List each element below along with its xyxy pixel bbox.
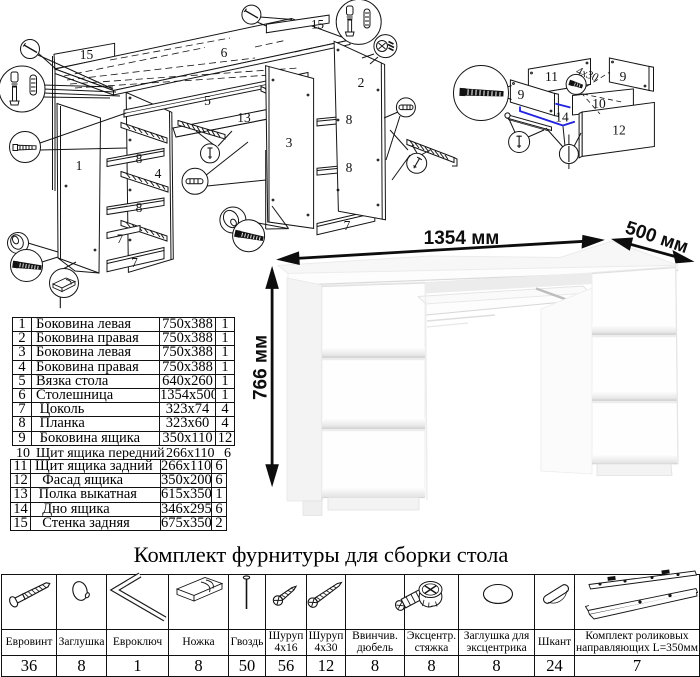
svg-text:2: 2 — [358, 75, 365, 90]
svg-text:8: 8 — [346, 112, 353, 127]
svg-text:4: 4 — [155, 166, 162, 181]
svg-text:3: 3 — [286, 135, 293, 150]
svg-text:9: 9 — [518, 87, 525, 102]
svg-text:10: 10 — [592, 96, 606, 111]
svg-text:7: 7 — [131, 255, 138, 270]
svg-text:15: 15 — [311, 17, 324, 32]
svg-text:1354 мм: 1354 мм — [424, 228, 500, 249]
svg-text:1: 1 — [76, 158, 83, 173]
svg-text:8: 8 — [346, 160, 353, 175]
svg-text:13: 13 — [237, 110, 251, 125]
svg-text:766 мм: 766 мм — [251, 335, 272, 400]
svg-text:12: 12 — [612, 123, 626, 138]
svg-text:15: 15 — [80, 47, 94, 62]
svg-text:9: 9 — [620, 69, 627, 84]
svg-text:5: 5 — [204, 93, 211, 108]
svg-text:14: 14 — [555, 110, 569, 125]
svg-text:7: 7 — [344, 218, 351, 233]
svg-text:11: 11 — [545, 69, 558, 84]
svg-text:7: 7 — [117, 231, 124, 246]
svg-text:8: 8 — [136, 151, 143, 166]
svg-text:8: 8 — [136, 200, 143, 215]
svg-text:6: 6 — [221, 45, 228, 60]
